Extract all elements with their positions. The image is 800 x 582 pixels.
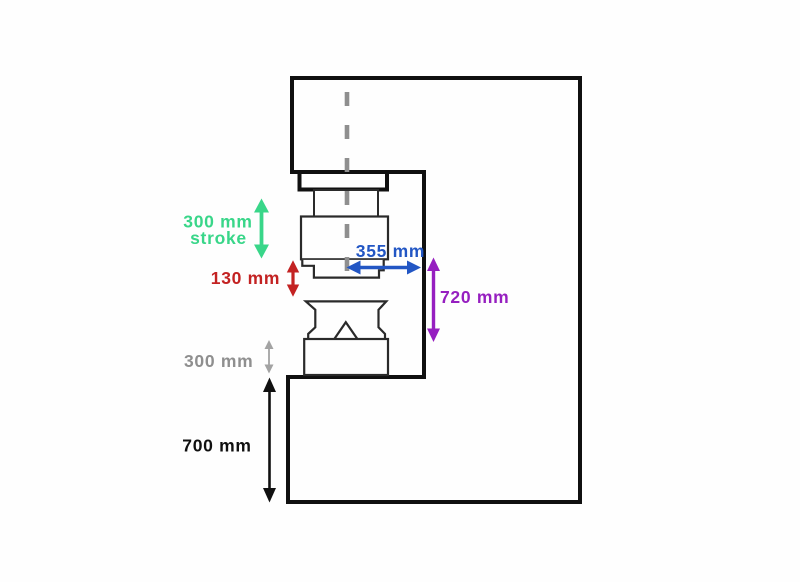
svg-text:355 mm: 355 mm	[356, 241, 425, 261]
svg-text:130 mm: 130 mm	[211, 268, 280, 288]
svg-text:300 mm: 300 mm	[184, 351, 253, 371]
svg-text:stroke: stroke	[190, 228, 247, 248]
svg-text:720 mm: 720 mm	[440, 287, 509, 307]
svg-text:700 mm: 700 mm	[182, 436, 251, 456]
